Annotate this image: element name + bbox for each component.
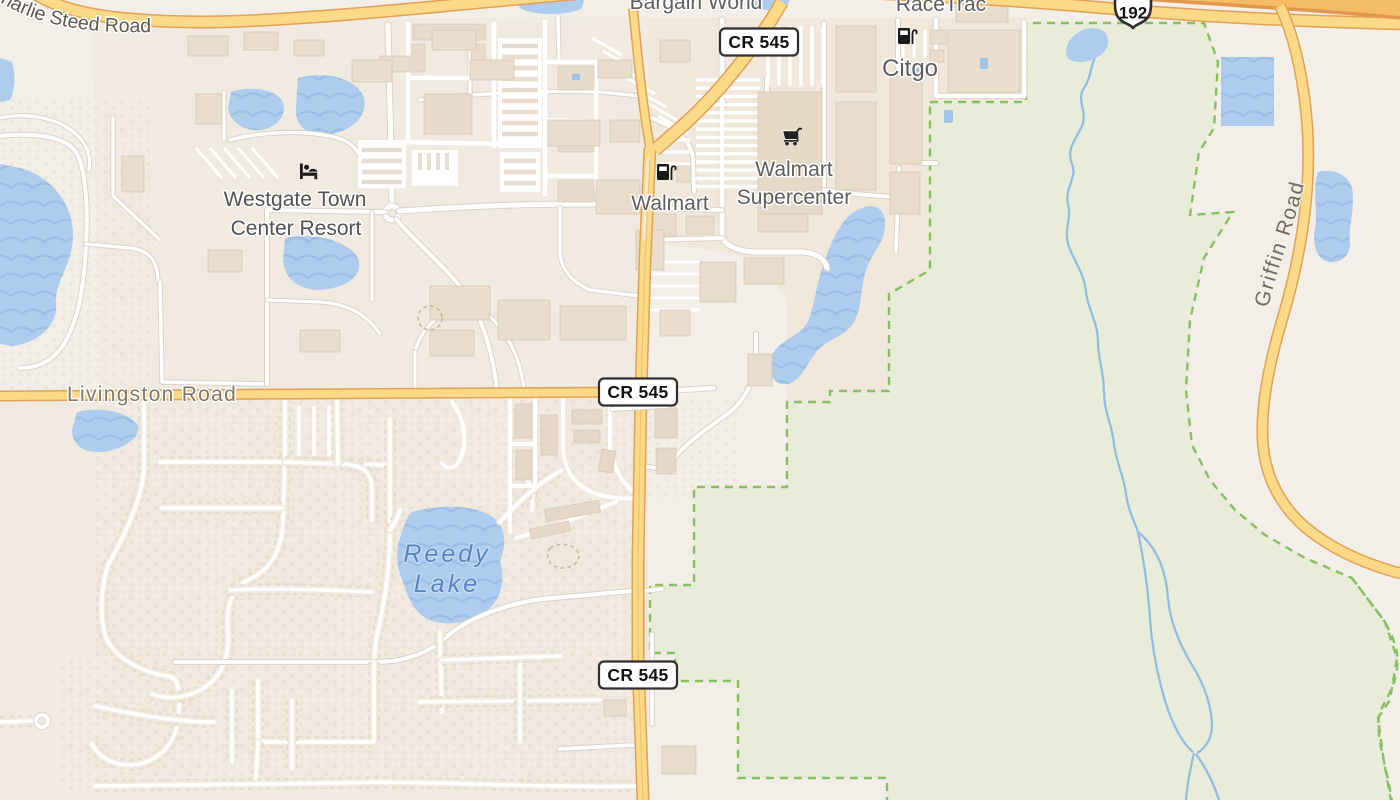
svg-text:Westgate Town: Westgate Town [224, 188, 367, 211]
svg-text:Walmart: Walmart [755, 158, 833, 181]
svg-text:CR 545: CR 545 [607, 665, 668, 685]
svg-text:Livingston Road: Livingston Road [67, 383, 237, 406]
svg-text:CR 545: CR 545 [607, 382, 668, 402]
svg-text:Reedy: Reedy [403, 540, 490, 568]
svg-text:Walmart: Walmart [631, 192, 709, 215]
svg-text:Lake: Lake [414, 570, 480, 598]
svg-text:CR 545: CR 545 [728, 32, 789, 52]
svg-text:Bargain World: Bargain World [630, 0, 763, 14]
svg-text:Supercenter: Supercenter [737, 186, 851, 209]
svg-text:RaceTrac: RaceTrac [896, 0, 986, 16]
svg-text:Center Resort: Center Resort [231, 217, 362, 240]
svg-text:192: 192 [1119, 4, 1147, 23]
svg-text:Citgo: Citgo [882, 55, 938, 82]
